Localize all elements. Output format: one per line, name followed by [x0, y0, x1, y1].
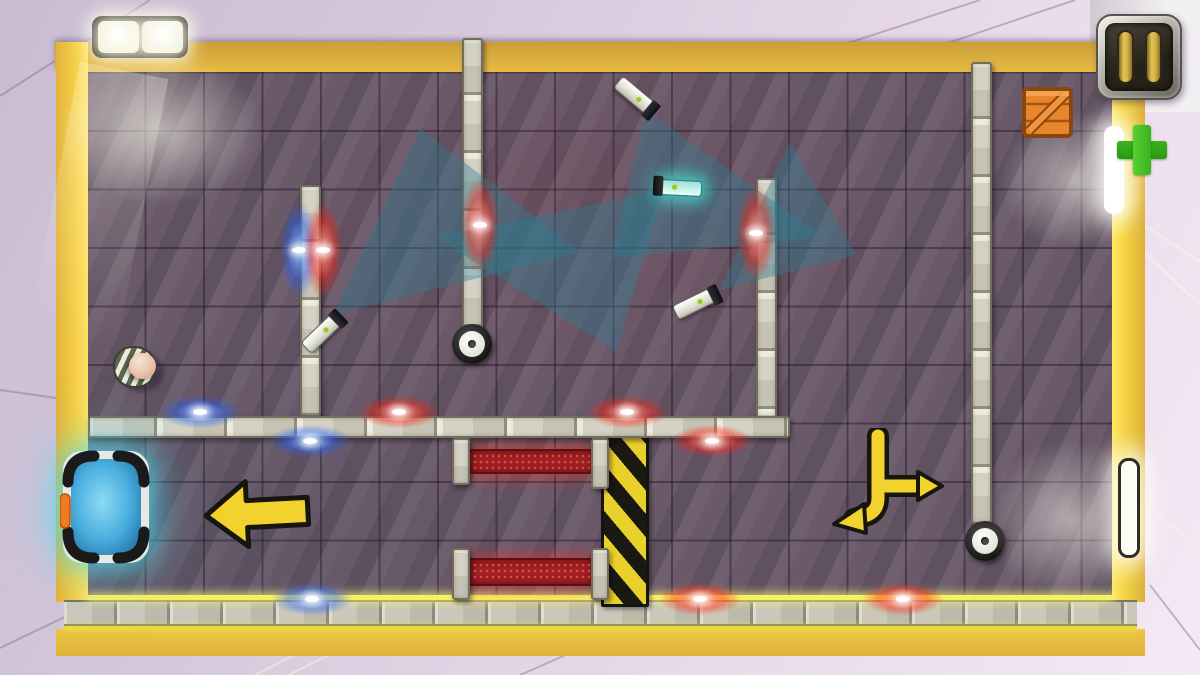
camera-led — [635, 96, 642, 103]
pause-bar — [1145, 30, 1162, 84]
alarm-light — [693, 596, 707, 602]
portal-handle — [60, 494, 70, 528]
wall-pivot-wheel[interactable] — [452, 324, 492, 364]
game-scene — [0, 0, 1200, 675]
pause-bar — [1117, 30, 1134, 84]
alarm-light — [392, 409, 406, 415]
alarm-light — [749, 230, 763, 236]
camera-led — [697, 298, 704, 305]
plus-icon — [1133, 125, 1151, 175]
alarm-light — [303, 438, 317, 444]
player-character[interactable] — [113, 344, 165, 394]
camera-led — [322, 326, 329, 333]
alarm-light — [705, 438, 719, 444]
security-camera[interactable] — [660, 179, 703, 197]
alarm-light — [316, 247, 330, 253]
camera-lens-head — [653, 176, 664, 196]
alarm-light — [896, 596, 910, 602]
character-head — [129, 353, 156, 379]
pause-icon — [1105, 23, 1173, 91]
camera-led — [672, 185, 677, 190]
lamp-pane — [142, 21, 183, 53]
plus-button[interactable] — [1116, 124, 1168, 176]
alarm-light — [473, 222, 487, 228]
exit-portal-frame — [60, 448, 152, 566]
alarm-light — [193, 409, 207, 415]
crate-icon[interactable] — [1022, 87, 1073, 138]
lamp-pane — [98, 21, 139, 53]
wheel-hole — [468, 340, 476, 348]
exit-portal — [60, 448, 152, 566]
wall-lamp — [1118, 458, 1140, 558]
alarm-light — [305, 596, 319, 602]
alarm-light — [620, 409, 634, 415]
pause-button[interactable] — [1096, 14, 1182, 100]
ceiling-lamp — [92, 16, 188, 58]
wheel-disc — [459, 331, 485, 357]
